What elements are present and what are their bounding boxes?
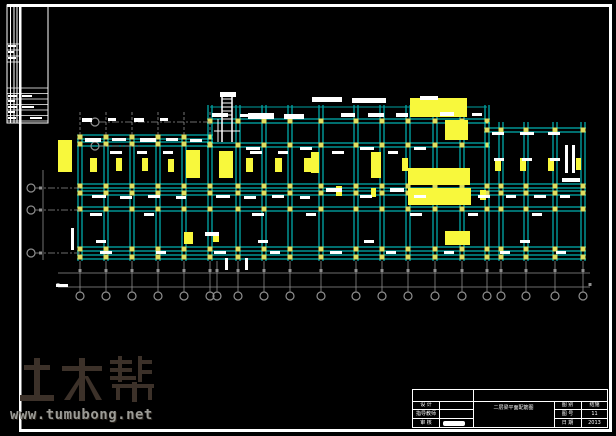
annotation-mark — [388, 151, 398, 154]
column-marker — [208, 255, 213, 260]
dimension-tick — [355, 269, 358, 272]
annotation-mark — [90, 213, 102, 216]
column-marker — [433, 207, 438, 212]
column-marker — [460, 207, 465, 212]
column-marker — [208, 191, 213, 196]
designer-label: 设 计 — [414, 401, 438, 409]
sheet-type-label: 图 别 — [555, 401, 580, 409]
signature-strip-mark — [8, 111, 15, 113]
annotation-mark — [492, 132, 504, 135]
column-marker — [78, 207, 83, 212]
annotation-mark — [556, 251, 566, 254]
column-marker — [354, 143, 359, 148]
annotation-mark — [144, 213, 154, 216]
column-marker — [208, 119, 213, 124]
column-marker — [581, 184, 586, 189]
date-label: 日 期 — [555, 419, 580, 427]
column-marker — [380, 191, 385, 196]
annotation-mark — [134, 118, 144, 122]
annotation-mark — [572, 145, 575, 173]
annotation-mark — [85, 138, 101, 142]
column-marker — [433, 255, 438, 260]
column-marker — [460, 143, 465, 148]
column-marker — [208, 143, 213, 148]
grid-bubble — [497, 292, 505, 300]
annotation-mark — [270, 251, 280, 254]
highlight-block — [58, 140, 72, 172]
column-marker — [288, 191, 293, 196]
annotation-mark — [520, 240, 530, 243]
column-marker — [262, 207, 267, 212]
annotation-mark — [156, 251, 166, 254]
column-marker — [319, 119, 324, 124]
column-marker — [460, 247, 465, 252]
signature-strip-mark — [8, 95, 17, 97]
highlight-block — [142, 158, 148, 171]
signature-strip-mark — [8, 45, 16, 47]
column-marker — [182, 191, 187, 196]
column-marker — [156, 142, 161, 147]
annotation-mark — [368, 113, 384, 117]
annotation-mark — [534, 195, 546, 198]
column-marker — [156, 191, 161, 196]
highlight-block — [90, 158, 97, 172]
column-marker — [406, 119, 411, 124]
column-marker — [460, 255, 465, 260]
dimension-tick — [263, 269, 266, 272]
grid-bubble — [91, 118, 99, 126]
signature-strip-mark — [8, 117, 16, 119]
dimension-tick — [589, 283, 592, 286]
column-marker — [319, 255, 324, 260]
annotation-mark — [71, 228, 74, 250]
highlight-block — [168, 159, 174, 172]
highlight-block — [311, 152, 319, 173]
column-marker — [319, 143, 324, 148]
signature-strip-mark — [8, 106, 17, 108]
column-marker — [319, 207, 324, 212]
column-marker — [319, 247, 324, 252]
dimension-tick — [131, 269, 134, 272]
annotation-mark — [92, 195, 106, 198]
annotation-mark — [364, 240, 374, 243]
column-marker — [581, 255, 586, 260]
grid-bubble — [522, 292, 530, 300]
column-marker — [78, 142, 83, 147]
column-marker — [182, 142, 187, 147]
annotation-mark — [522, 158, 532, 161]
column-marker — [485, 247, 490, 252]
annotation-mark — [245, 258, 248, 270]
annotation-mark — [468, 213, 478, 216]
annotation-mark — [112, 138, 126, 141]
annotation-mark — [148, 195, 160, 198]
column-marker — [130, 207, 135, 212]
dimension-tick — [39, 209, 42, 212]
annotation-mark — [420, 96, 438, 100]
column-marker — [104, 207, 109, 212]
column-marker — [581, 247, 586, 252]
column-marker — [236, 191, 241, 196]
annotation-mark — [386, 251, 396, 254]
grid-bubble — [317, 292, 325, 300]
annotation-mark — [332, 151, 344, 154]
annotation-mark — [444, 251, 454, 254]
annotation-mark — [56, 284, 68, 287]
grid-bubble — [458, 292, 466, 300]
annotation-mark — [176, 196, 186, 199]
annotation-mark — [440, 112, 454, 116]
annotation-mark — [252, 213, 264, 216]
column-marker — [236, 247, 241, 252]
sheet-border-right — [609, 4, 612, 432]
grid-bubble — [27, 249, 35, 257]
annotation-mark — [82, 118, 92, 122]
column-marker — [524, 184, 529, 189]
column-marker — [130, 255, 135, 260]
column-marker — [288, 143, 293, 148]
dimension-tick — [381, 269, 384, 272]
annotation-mark — [506, 195, 516, 198]
annotation-mark — [160, 118, 168, 121]
column-marker — [524, 207, 529, 212]
grid-bubble — [551, 292, 559, 300]
grid-bubble — [483, 292, 491, 300]
title-block: 设 计 指导教师 审 核 二层梁平面配筋图 图 别 图 号 日 期 结施 11 … — [412, 389, 608, 428]
annotation-mark — [410, 213, 422, 216]
dimension-tick — [525, 269, 528, 272]
column-marker — [499, 247, 504, 252]
grid-bubble — [286, 292, 294, 300]
column-marker — [553, 207, 558, 212]
column-marker — [485, 184, 490, 189]
column-marker — [288, 184, 293, 189]
annotation-mark — [258, 240, 268, 243]
column-marker — [156, 247, 161, 252]
annotation-mark — [300, 147, 312, 150]
highlight-block — [445, 231, 470, 245]
dimension-tick — [500, 269, 503, 272]
annotation-mark — [100, 251, 112, 254]
column-marker — [182, 255, 187, 260]
column-marker — [319, 184, 324, 189]
annotation-mark — [312, 97, 342, 102]
column-marker — [524, 255, 529, 260]
dimension-tick — [407, 269, 410, 272]
watermark-url: www.tumubong.net — [10, 407, 153, 423]
annotation-mark — [190, 139, 202, 142]
column-marker — [553, 247, 558, 252]
column-marker — [380, 143, 385, 148]
sheet-border-bottom — [19, 429, 612, 432]
column-marker — [380, 119, 385, 124]
column-marker — [262, 255, 267, 260]
annotation-mark — [414, 195, 426, 198]
column-marker — [485, 128, 490, 133]
annotation-mark — [110, 151, 122, 154]
dimension-tick — [434, 269, 437, 272]
signature-strip-mark — [8, 57, 16, 59]
annotation-mark — [560, 195, 570, 198]
sheet-number-label: 图 号 — [555, 410, 580, 418]
column-marker — [433, 143, 438, 148]
highlight-block — [410, 98, 467, 117]
column-marker — [499, 255, 504, 260]
column-marker — [553, 191, 558, 196]
column-marker — [288, 255, 293, 260]
column-marker — [130, 191, 135, 196]
column-marker — [104, 255, 109, 260]
annotation-mark — [244, 196, 256, 199]
column-marker — [182, 135, 187, 140]
column-marker — [499, 191, 504, 196]
column-marker — [182, 247, 187, 252]
signature-mark — [443, 421, 465, 426]
annotation-mark — [472, 113, 482, 116]
highlight-block — [445, 120, 468, 140]
grid-bubble — [352, 292, 360, 300]
column-marker — [354, 207, 359, 212]
highlight-block — [371, 152, 381, 178]
signature-strip-mark — [22, 95, 32, 97]
annotation-mark — [390, 188, 404, 192]
annotation-mark — [212, 113, 228, 117]
grid-bubble — [76, 292, 84, 300]
sheet-number-value: 11 — [582, 410, 607, 418]
dimension-tick — [216, 269, 219, 272]
column-marker — [581, 128, 586, 133]
column-marker — [156, 184, 161, 189]
annotation-mark — [250, 151, 262, 154]
annotation-mark — [341, 113, 355, 117]
column-marker — [354, 191, 359, 196]
annotation-mark — [532, 213, 542, 216]
column-marker — [182, 207, 187, 212]
column-marker — [406, 143, 411, 148]
column-marker — [354, 255, 359, 260]
grid-bubble — [234, 292, 242, 300]
annotation-mark — [205, 232, 219, 236]
annotation-mark — [500, 251, 510, 254]
dimension-tick — [289, 269, 292, 272]
column-marker — [262, 143, 267, 148]
dimension-tick — [183, 269, 186, 272]
signature-strip-mark — [8, 100, 15, 102]
annotation-mark — [96, 240, 106, 243]
annotation-mark — [163, 151, 173, 154]
annotation-mark — [248, 113, 274, 119]
column-marker — [553, 128, 558, 133]
cad-sheet: 土木帮 www.tumubong.net 设 计 指导教师 审 核 — [0, 0, 616, 436]
annotation-mark — [300, 196, 310, 199]
dimension-tick — [209, 269, 212, 272]
column-marker — [130, 135, 135, 140]
column-marker — [485, 207, 490, 212]
annotation-mark — [220, 92, 236, 97]
highlight-block — [408, 168, 470, 185]
annotation-mark — [246, 147, 260, 150]
column-marker — [236, 255, 241, 260]
grid-bubble — [260, 292, 268, 300]
annotation-mark — [306, 213, 316, 216]
watermark-logo-shapes — [18, 356, 160, 406]
column-marker — [78, 191, 83, 196]
column-marker — [156, 255, 161, 260]
column-marker — [262, 184, 267, 189]
annotation-mark — [326, 188, 342, 192]
column-marker — [104, 247, 109, 252]
signature-strip-mark — [22, 106, 34, 108]
column-marker — [553, 255, 558, 260]
annotation-mark — [214, 251, 226, 254]
annotation-mark — [352, 98, 386, 103]
column-marker — [499, 184, 504, 189]
dimension-tick — [157, 269, 160, 272]
column-marker — [380, 255, 385, 260]
column-marker — [208, 184, 213, 189]
annotation-mark — [137, 151, 147, 154]
dimension-tick — [461, 269, 464, 272]
dimension-tick — [554, 269, 557, 272]
column-marker — [104, 184, 109, 189]
annotation-mark — [166, 138, 178, 141]
annotation-mark — [360, 147, 374, 150]
column-marker — [581, 207, 586, 212]
column-marker — [130, 247, 135, 252]
column-marker — [208, 247, 213, 252]
highlight-block — [219, 151, 233, 178]
annotation-mark — [520, 132, 534, 135]
dimension-tick — [39, 252, 42, 255]
drawing-title: 二层梁平面配筋图 — [474, 404, 553, 412]
column-marker — [319, 191, 324, 196]
grid-bubble — [27, 206, 35, 214]
date-value: 2013 — [582, 419, 607, 427]
grid-bubble — [404, 292, 412, 300]
column-marker — [406, 207, 411, 212]
column-marker — [433, 247, 438, 252]
column-marker — [236, 207, 241, 212]
column-marker — [262, 119, 267, 124]
column-marker — [208, 207, 213, 212]
column-marker — [380, 247, 385, 252]
column-marker — [406, 255, 411, 260]
grid-bubble — [378, 292, 386, 300]
sheet-border-top — [7, 4, 612, 7]
highlight-block — [186, 150, 200, 178]
title-block-divider — [439, 401, 440, 427]
grid-bubble — [579, 292, 587, 300]
column-marker — [499, 207, 504, 212]
signature-strip-mark — [8, 51, 14, 53]
column-marker — [354, 119, 359, 124]
annotation-mark — [550, 158, 560, 161]
annotation-mark — [216, 195, 230, 198]
column-marker — [354, 247, 359, 252]
dimension-tick — [39, 187, 42, 190]
annotation-mark — [562, 178, 580, 182]
column-marker — [354, 184, 359, 189]
column-marker — [236, 184, 241, 189]
annotation-mark — [360, 195, 372, 198]
reviewer-label: 审 核 — [414, 419, 438, 427]
dimension-tick — [237, 269, 240, 272]
grid-bubble — [180, 292, 188, 300]
annotation-mark — [108, 118, 116, 121]
annotation-mark — [225, 258, 228, 270]
dimension-tick — [105, 269, 108, 272]
highlight-block — [184, 232, 193, 244]
grid-bubble — [128, 292, 136, 300]
advisor-label: 指导教师 — [414, 410, 438, 418]
column-marker — [288, 207, 293, 212]
annotation-mark — [494, 158, 504, 161]
column-marker — [524, 247, 529, 252]
annotation-mark — [272, 195, 284, 198]
highlight-block — [116, 158, 122, 171]
column-marker — [130, 184, 135, 189]
column-marker — [262, 191, 267, 196]
grid-bubble — [102, 292, 110, 300]
column-marker — [288, 119, 293, 124]
annotation-mark — [396, 113, 408, 117]
column-marker — [78, 247, 83, 252]
annotation-mark — [414, 147, 426, 150]
column-marker — [380, 184, 385, 189]
signature-strip-mark — [30, 117, 42, 119]
column-marker — [524, 191, 529, 196]
column-marker — [485, 255, 490, 260]
dimension-tick — [320, 269, 323, 272]
grid-bubble — [431, 292, 439, 300]
annotation-mark — [278, 151, 288, 154]
column-marker — [380, 207, 385, 212]
column-marker — [236, 143, 241, 148]
column-marker — [433, 119, 438, 124]
column-marker — [104, 191, 109, 196]
annotation-mark — [284, 114, 304, 119]
column-marker — [406, 247, 411, 252]
column-marker — [236, 119, 241, 124]
sheet-type-value: 结施 — [582, 401, 607, 409]
annotation-mark — [120, 196, 132, 199]
signature-strip — [7, 5, 48, 123]
annotation-mark — [330, 251, 342, 254]
watermark-logo: 土木帮 — [18, 356, 160, 410]
column-marker — [182, 184, 187, 189]
dimension-tick — [582, 269, 585, 272]
highlight-block — [576, 158, 581, 170]
dimension-tick — [79, 269, 82, 272]
annotation-mark — [565, 145, 568, 173]
column-marker — [288, 247, 293, 252]
dimension-tick — [486, 269, 489, 272]
column-marker — [78, 135, 83, 140]
highlight-block — [304, 158, 311, 172]
grid-bubble — [27, 184, 35, 192]
column-marker — [499, 128, 504, 133]
column-marker — [524, 128, 529, 133]
column-marker — [262, 247, 267, 252]
grid-bubble — [154, 292, 162, 300]
column-marker — [156, 207, 161, 212]
column-marker — [104, 135, 109, 140]
column-marker — [553, 184, 558, 189]
highlight-block — [402, 158, 408, 171]
column-marker — [156, 135, 161, 140]
annotation-mark — [478, 195, 490, 198]
annotation-mark — [140, 138, 156, 142]
